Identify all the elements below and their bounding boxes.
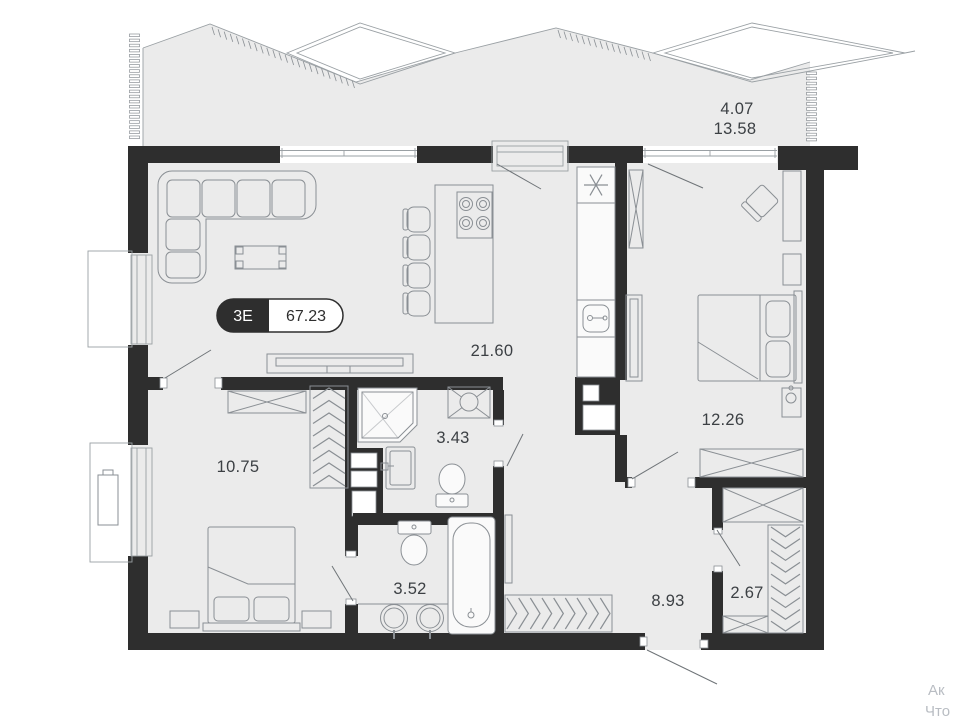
terrace-hatch-left: [130, 34, 140, 139]
room-label-bathroom-tub: 3.52: [393, 580, 426, 598]
shower-icon: [358, 388, 417, 442]
watermark-line1: Ак: [928, 682, 945, 699]
kitchen-counter: [577, 167, 615, 377]
bathtub-icon: [448, 517, 495, 634]
room-label-bedroom-right: 12.26: [702, 411, 745, 429]
window-living-top: [280, 146, 417, 163]
room-label-bedroom-left: 10.75: [217, 458, 260, 476]
floor-plan-svg: 4.07 13.58: [0, 0, 960, 722]
window-bedroom-top: [643, 146, 777, 163]
room-label-terrace-upper: 4.07: [720, 100, 753, 118]
apartment-badge: 3Е 67.23: [217, 299, 343, 332]
terrace: 4.07 13.58: [130, 23, 916, 146]
kitchen-sink-icon: [583, 305, 609, 332]
room-label-living: 21.60: [471, 342, 514, 360]
badge-area-value: 67.23: [286, 308, 326, 325]
room-label-closet: 2.67: [730, 584, 763, 602]
radiator-icon: [98, 470, 118, 525]
partition-panel: [505, 515, 512, 583]
room-label-terrace-lower: 13.58: [714, 120, 757, 138]
terrace-floor: [143, 24, 810, 146]
room-label-bathroom-shower: 3.43: [436, 429, 469, 447]
watermark: Ак Что: [925, 682, 950, 720]
door-leaf-entry: [647, 650, 717, 684]
watermark-line2: Что: [925, 703, 950, 720]
badge-type-label: 3Е: [233, 308, 253, 325]
floor-plan-page: 4.07 13.58: [0, 0, 960, 722]
room-label-hallway: 8.93: [651, 592, 684, 610]
toilet-icon: [436, 464, 468, 507]
